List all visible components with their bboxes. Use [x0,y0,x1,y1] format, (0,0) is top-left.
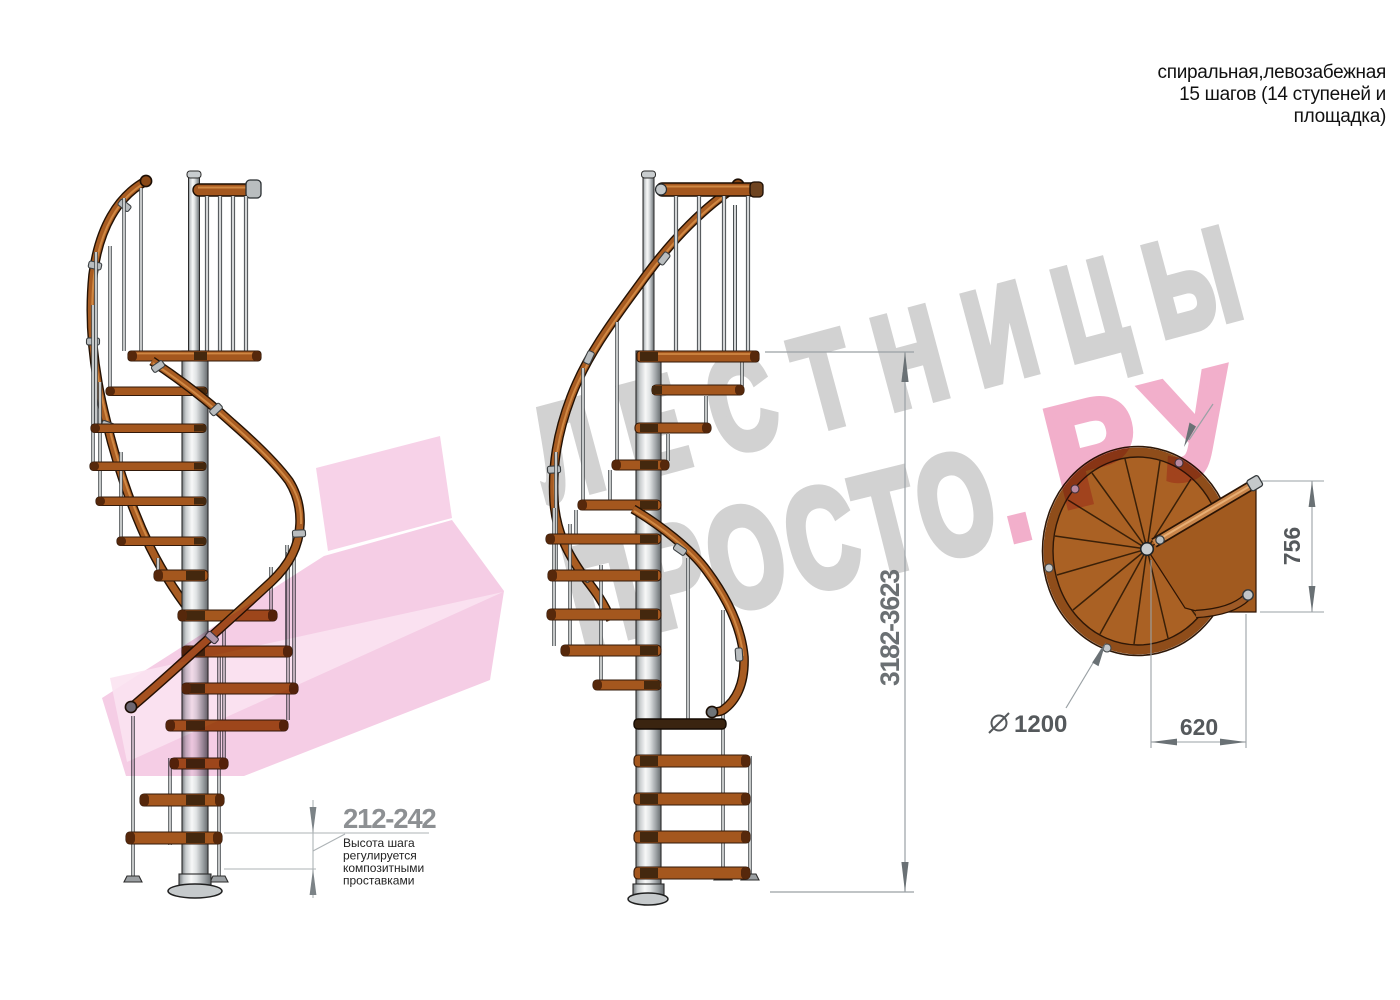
svg-text:проставками: проставками [343,874,414,888]
svg-text:756: 756 [1279,527,1305,565]
svg-text:212-242: 212-242 [343,803,436,834]
svg-text:620: 620 [1180,714,1218,740]
svg-text:15 шагов (14 ступеней и: 15 шагов (14 ступеней и [1179,84,1386,105]
svg-text:1200: 1200 [1014,711,1067,738]
svg-text:3182-3623: 3182-3623 [875,570,905,686]
svg-text:площадка): площадка) [1294,106,1386,127]
svg-text:спиральная,левозабежная: спиральная,левозабежная [1158,62,1387,83]
